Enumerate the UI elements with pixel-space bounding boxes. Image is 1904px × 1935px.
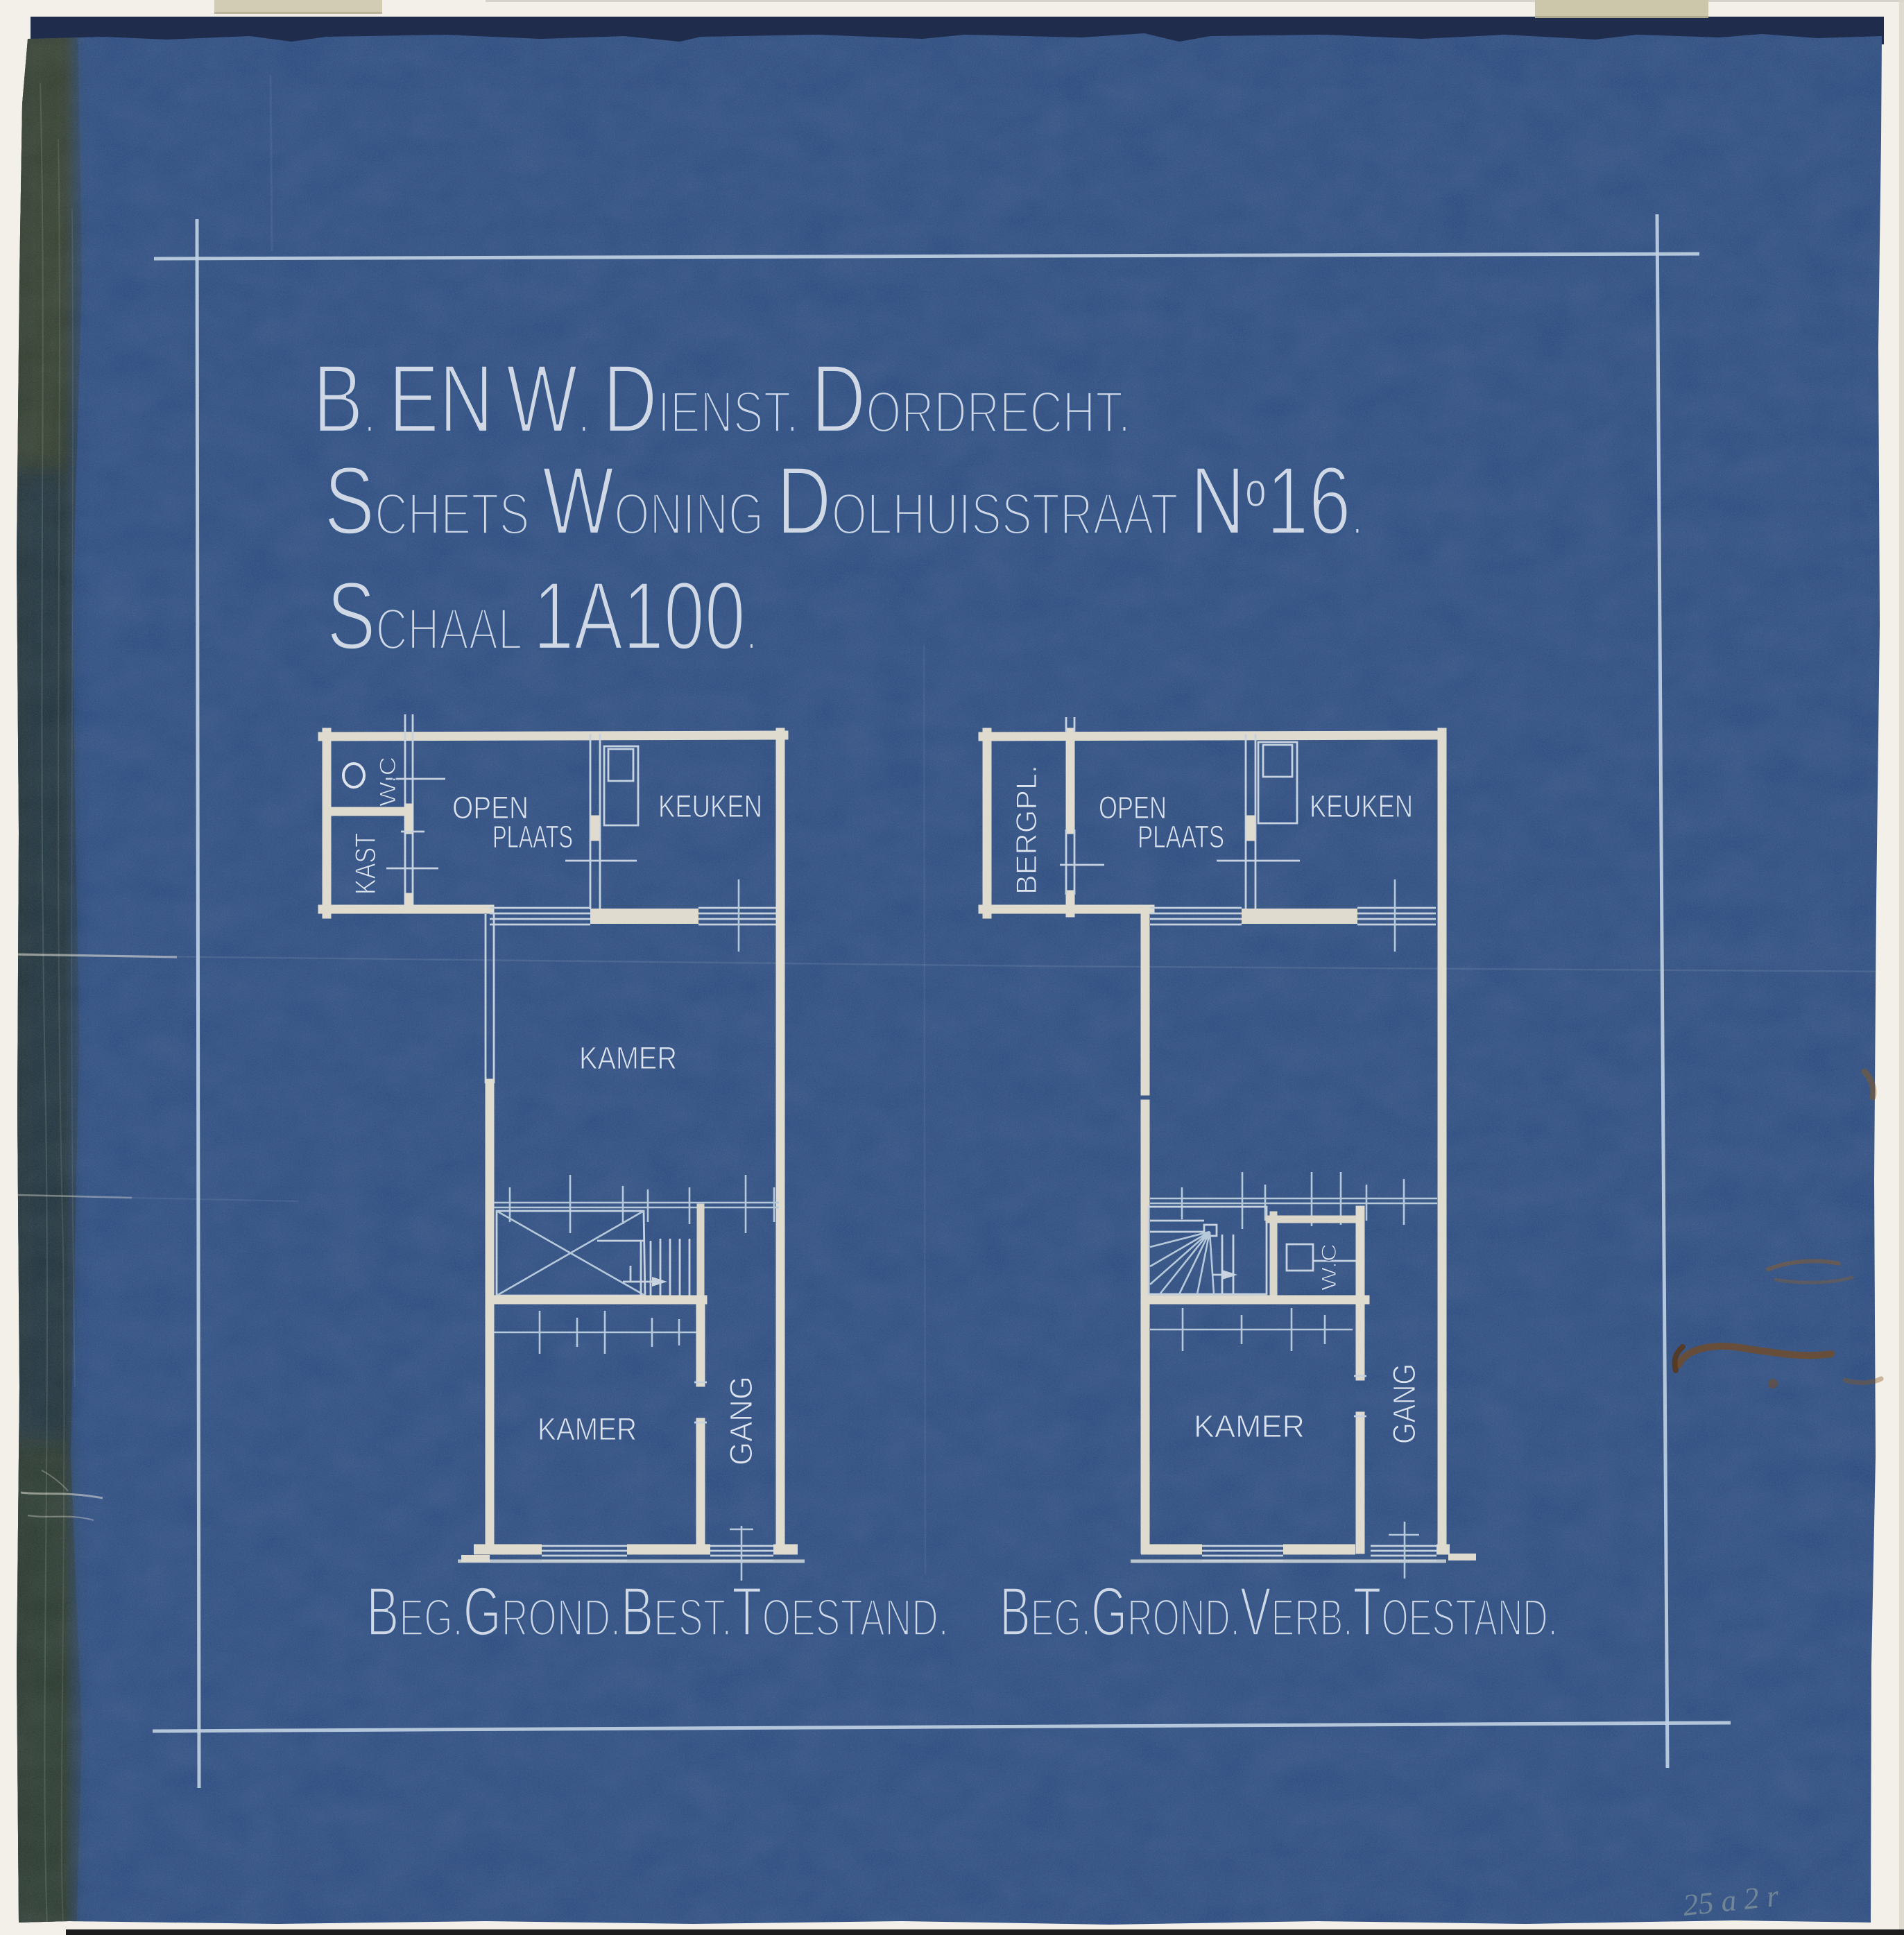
svg-text:KEUKEN: KEUKEN xyxy=(658,789,762,824)
svg-text:KAST: KAST xyxy=(349,833,381,895)
svg-text:PLAATS: PLAATS xyxy=(492,819,573,854)
svg-text:GANG: GANG xyxy=(723,1376,759,1465)
svg-text:KAMER: KAMER xyxy=(1194,1409,1305,1444)
svg-text:PLAATS: PLAATS xyxy=(1138,819,1224,854)
svg-text:KAMER: KAMER xyxy=(538,1411,637,1447)
svg-text:GANG: GANG xyxy=(1387,1364,1422,1444)
svg-text:W.C: W.C xyxy=(375,757,400,807)
svg-text:KAMER: KAMER xyxy=(579,1040,677,1076)
svg-text:W.C: W.C xyxy=(1318,1244,1341,1291)
svg-text:KEUKEN: KEUKEN xyxy=(1310,789,1413,824)
svg-text:BERGPL.: BERGPL. xyxy=(1010,765,1043,895)
